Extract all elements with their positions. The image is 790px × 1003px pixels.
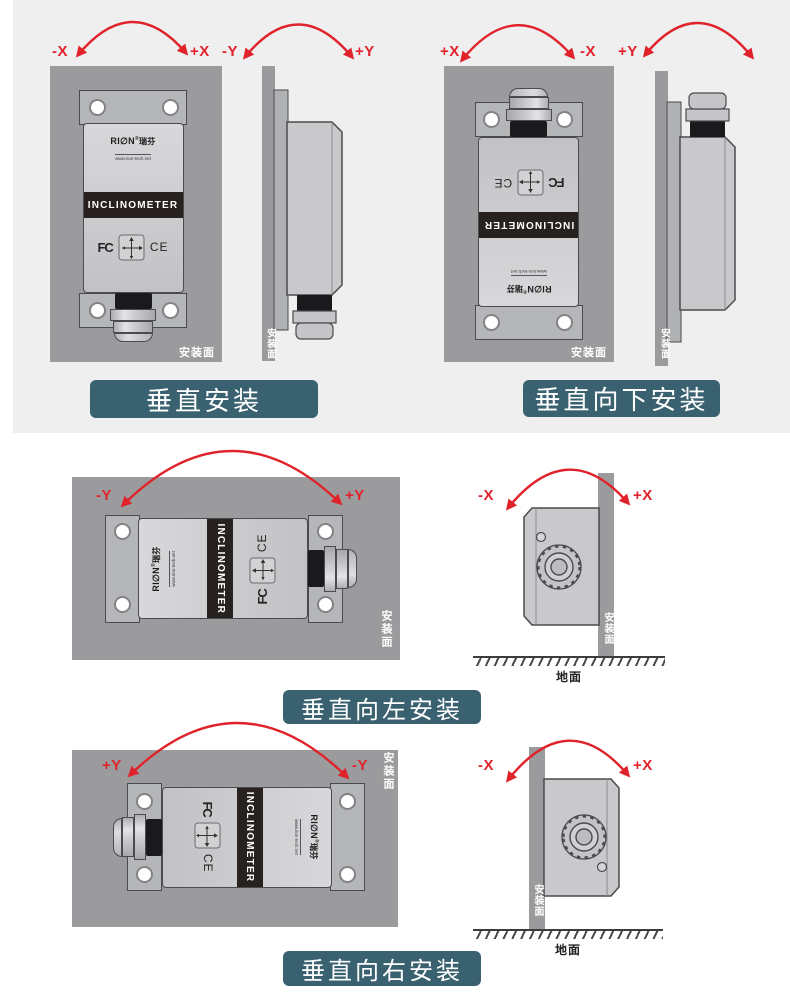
axis-label: -X	[478, 757, 494, 774]
mounting-hole	[339, 866, 356, 883]
brand-text-cn: 瑞芬	[309, 843, 318, 860]
mounting-hole	[162, 99, 179, 116]
ce-mark: CE	[494, 176, 513, 190]
axis-label: +X	[190, 43, 210, 60]
product-name: INCLINOMETER	[484, 220, 575, 231]
cable-gland	[475, 89, 583, 137]
ground-label: 地面	[473, 668, 665, 685]
device-body: RI∅N®瑞芬 www.rion-tech.net INCLINOMETER F…	[162, 787, 332, 888]
axis-label: -X	[52, 43, 68, 60]
mounting-flange	[105, 515, 140, 623]
axis-label: +Y	[102, 757, 122, 774]
ground-hatch	[473, 656, 665, 666]
certification-row: FC CE	[480, 166, 579, 200]
gland-nut	[336, 549, 348, 589]
mount-surface-label: 安装面	[378, 610, 394, 649]
brand-website: www.rion-tech.net	[169, 551, 176, 587]
device-body: RI∅N®瑞芬 www.rion-tech.net INCLINOMETER F…	[479, 137, 580, 307]
product-name: INCLINOMETER	[88, 200, 179, 211]
section-title-text: 垂直向右安装	[301, 951, 463, 986]
brand-logo: RI∅N®瑞芬 www.rion-tech.net	[84, 136, 183, 165]
gland-nut	[110, 309, 156, 321]
brand-text: RI∅N	[151, 567, 161, 592]
cable-gland	[79, 293, 187, 341]
axis-label: -Y	[96, 487, 112, 504]
fcc-mark: FC	[549, 176, 564, 191]
certification-row: FC CE	[191, 788, 225, 887]
axis-label: +Y	[618, 43, 638, 60]
rotation-arrow-x-s2	[448, 12, 588, 67]
brand-website: www.rion-tech.net	[294, 819, 301, 855]
axis-label: +X	[633, 487, 653, 504]
gland-ring	[115, 293, 152, 309]
certification-row: FC CE	[84, 230, 183, 264]
device-body: RI∅N®瑞芬 www.rion-tech.net INCLINOMETER F…	[83, 123, 184, 293]
gland-ring	[308, 551, 324, 588]
registered-mark: ®	[523, 288, 527, 294]
brand-logo: RI∅N®瑞芬 www.rion-tech.net	[290, 788, 319, 887]
fcc-mark: FC	[201, 801, 216, 816]
brand-text-cn: 瑞芬	[506, 284, 523, 293]
axis-orientation-icon	[517, 170, 544, 197]
product-name-band: INCLINOMETER	[480, 212, 579, 238]
mounting-hole	[483, 314, 500, 331]
inclinometer-front-view-s2: RI∅N®瑞芬 www.rion-tech.net INCLINOMETER F…	[475, 90, 583, 340]
mount-surface-label: 安装面	[600, 612, 615, 645]
rotation-arrow-y-s4	[115, 710, 350, 778]
rotation-arrow-x-s3	[495, 462, 640, 514]
mount-surface-label: 安装面	[380, 752, 396, 791]
ground-label: 地面	[473, 941, 663, 958]
section-title-text: 垂直安装	[146, 381, 262, 418]
product-name-band: INCLINOMETER	[237, 788, 263, 887]
fcc-mark: FC	[97, 240, 112, 255]
axis-label: -Y	[352, 757, 368, 774]
section-title-text: 垂直向下安装	[534, 380, 708, 417]
mounting-hole	[89, 99, 106, 116]
rotation-arrow-x-s4	[495, 732, 640, 784]
gland-nut	[324, 546, 336, 592]
rotation-arrow-y-s3	[110, 440, 345, 508]
inclinometer-side-view-s2	[655, 66, 740, 366]
inclinometer-front-view-s3: RI∅N®瑞芬 www.rion-tech.net INCLINOMETER F…	[105, 515, 355, 623]
axis-label: -X	[478, 487, 494, 504]
gland-cap	[510, 88, 549, 97]
mounting-flange	[330, 783, 365, 891]
gland-nut	[509, 97, 549, 109]
device-body: RI∅N®瑞芬 www.rion-tech.net INCLINOMETER F…	[138, 519, 308, 620]
rotation-arrow-y-s2	[630, 12, 770, 67]
axis-label: +X	[440, 43, 460, 60]
installation-diagram-page: RI∅N®瑞芬 www.rion-tech.net INCLINOMETER F…	[0, 0, 790, 1003]
rotation-arrow-x-s1	[60, 12, 205, 67]
axis-orientation-icon	[249, 557, 276, 584]
axis-label: +Y	[345, 487, 365, 504]
axis-orientation-icon	[118, 234, 145, 261]
brand-text: RI∅N	[527, 284, 552, 294]
gland-ring	[511, 121, 548, 137]
fcc-mark: FC	[255, 589, 270, 604]
registered-mark: ®	[151, 563, 157, 567]
gland-cap	[114, 333, 153, 342]
brand-text: RI∅N	[110, 136, 135, 146]
gland-nut	[122, 817, 134, 857]
certification-row: FC CE	[245, 520, 279, 619]
ground-hatch	[473, 929, 663, 939]
ce-mark: CE	[255, 534, 269, 553]
mounting-hole	[114, 596, 131, 613]
brand-text: RI∅N	[309, 814, 319, 839]
brand-logo: RI∅N®瑞芬 www.rion-tech.net	[480, 265, 579, 294]
inclinometer-front-view-s1: RI∅N®瑞芬 www.rion-tech.net INCLINOMETER F…	[79, 90, 187, 340]
axis-orientation-icon	[195, 822, 222, 849]
product-name: INCLINOMETER	[245, 792, 256, 883]
gland-nut	[506, 109, 552, 121]
product-name-band: INCLINOMETER	[84, 192, 183, 218]
gland-nut	[134, 814, 146, 860]
mount-surface-label: 安装面	[263, 328, 277, 360]
brand-text-cn: 瑞芬	[139, 137, 156, 146]
gland-nut	[113, 321, 153, 333]
rotation-arrow-y-s1	[228, 12, 373, 67]
brand-website: www.rion-tech.net	[511, 269, 547, 276]
mounting-hole	[114, 523, 131, 540]
axis-label: +Y	[355, 43, 375, 60]
section-title-vertical-down: 垂直向下安装	[523, 380, 720, 417]
inclinometer-side-view-s1	[262, 66, 347, 366]
axis-label: +X	[633, 757, 653, 774]
section-title-vertical-right: 垂直向右安装	[283, 951, 481, 986]
mount-surface-label: 安装面	[179, 344, 215, 360]
ce-mark: CE	[201, 854, 215, 873]
mounting-flange	[79, 90, 187, 125]
product-name: INCLINOMETER	[215, 524, 226, 615]
mount-surface-label: 安装面	[530, 884, 545, 917]
mount-surface-label: 安装面	[571, 344, 607, 360]
gland-cap	[113, 818, 122, 857]
mounting-flange	[475, 305, 583, 340]
cable-gland	[308, 515, 356, 623]
brand-logo: RI∅N®瑞芬 www.rion-tech.net	[151, 520, 180, 619]
cable-gland	[114, 783, 162, 891]
axis-label: -Y	[222, 43, 238, 60]
product-name-band: INCLINOMETER	[207, 520, 233, 619]
gland-ring	[146, 819, 162, 856]
brand-text-cn: 瑞芬	[152, 546, 161, 563]
brand-website: www.rion-tech.net	[115, 154, 151, 161]
axis-label: -X	[580, 43, 596, 60]
mount-surface-label: 安装面	[657, 328, 671, 360]
mounting-hole	[556, 314, 573, 331]
section-title-vertical: 垂直安装	[90, 380, 318, 418]
gland-cap	[348, 550, 357, 589]
ce-mark: CE	[150, 240, 169, 254]
inclinometer-front-view-s4: RI∅N®瑞芬 www.rion-tech.net INCLINOMETER F…	[115, 783, 365, 891]
mounting-hole	[339, 793, 356, 810]
